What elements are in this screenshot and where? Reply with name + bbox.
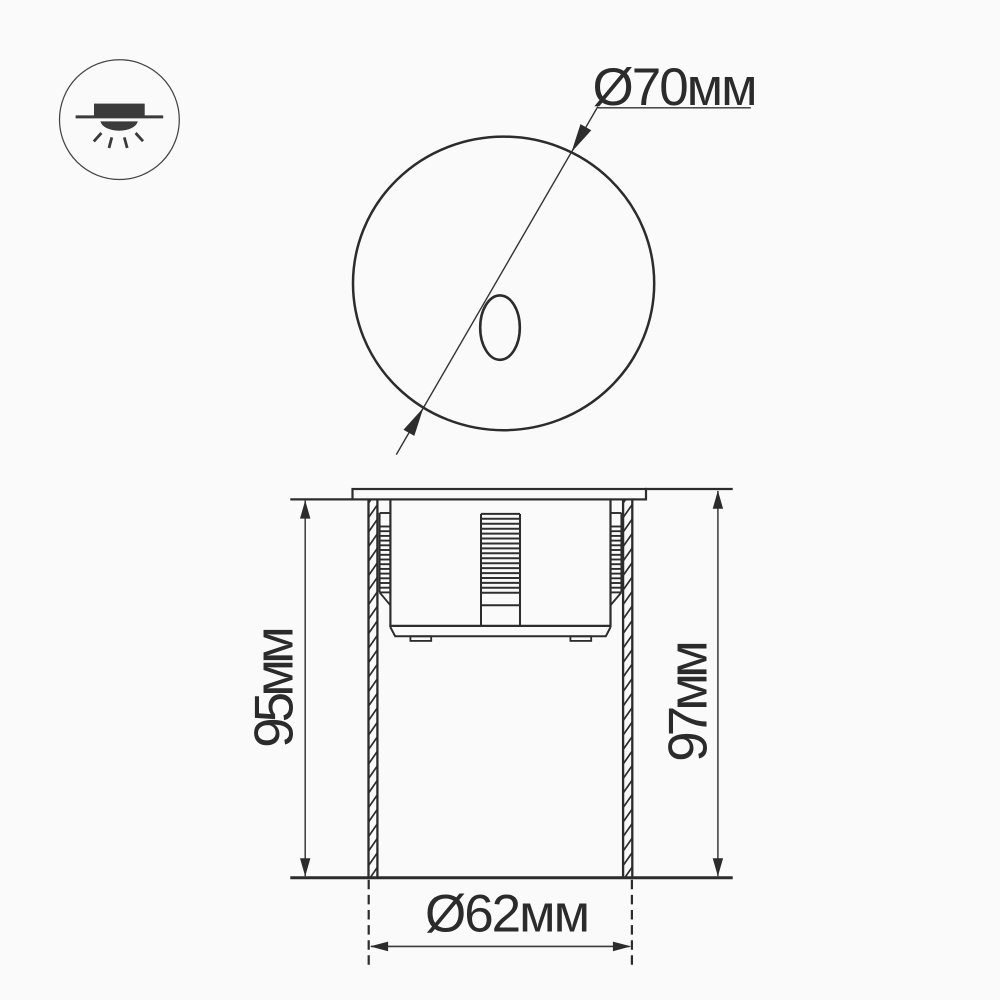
svg-text:97мм: 97мм bbox=[657, 643, 719, 762]
svg-text:Ø62мм: Ø62мм bbox=[425, 885, 588, 944]
svg-text:95мм: 95мм bbox=[243, 629, 305, 748]
